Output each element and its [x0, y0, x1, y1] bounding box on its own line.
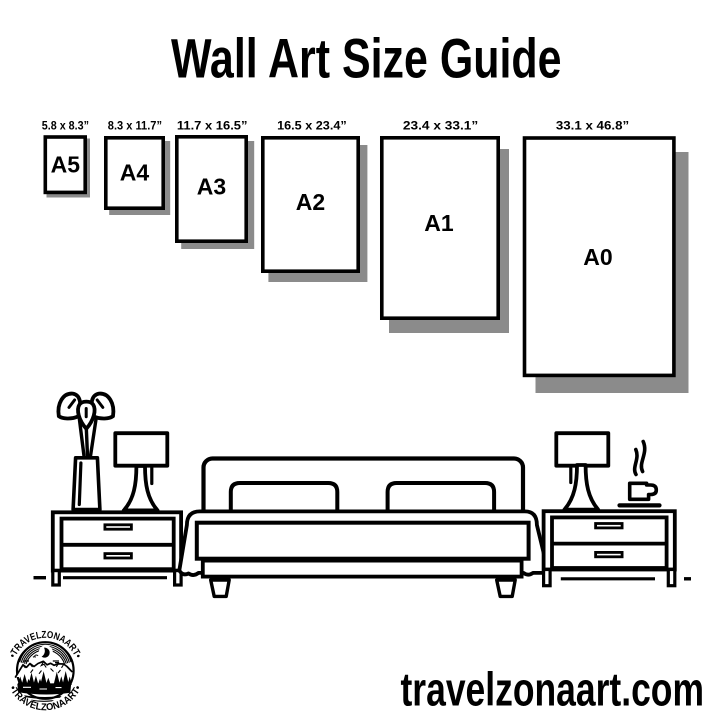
svg-text:16.5 x 23.4”: 16.5 x 23.4”: [277, 120, 347, 132]
svg-text:A3: A3: [197, 174, 226, 200]
svg-text:11.7 x 16.5”: 11.7 x 16.5”: [177, 120, 248, 132]
svg-text:5.8 x 8.3”: 5.8 x 8.3”: [42, 120, 89, 132]
svg-text:A1: A1: [424, 210, 454, 236]
svg-text:A5: A5: [51, 152, 81, 178]
svg-text:A0: A0: [583, 244, 612, 270]
svg-text:8.3 x 11.7”: 8.3 x 11.7”: [108, 120, 162, 132]
svg-text:travelzonaart.com: travelzonaart.com: [401, 663, 705, 716]
svg-text:A2: A2: [296, 189, 325, 215]
svg-text:Wall Art Size Guide: Wall Art Size Guide: [171, 27, 562, 90]
svg-text:33.1 x 46.8”: 33.1 x 46.8”: [556, 120, 629, 132]
svg-text:A4: A4: [120, 160, 150, 186]
svg-text:23.4 x 33.1”: 23.4 x 33.1”: [403, 120, 478, 132]
